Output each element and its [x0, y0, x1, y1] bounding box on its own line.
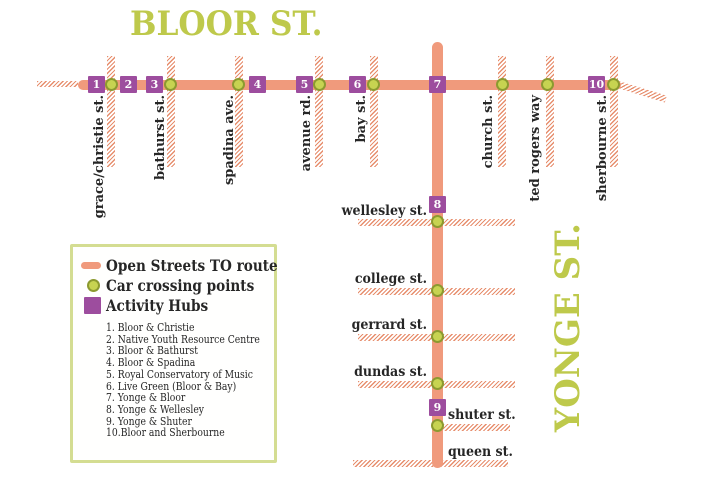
yonge-street-title: YONGE ST. [546, 223, 590, 432]
crossing-point-avenue-rd [313, 78, 326, 91]
legend-route-label: Open Streets TO route [106, 256, 278, 276]
street-label-gerrard: gerrard st. [310, 317, 427, 333]
street-label-bathurst: bathurst st. [152, 95, 170, 180]
crossing-point-church [496, 78, 509, 91]
church-street-hatch [498, 56, 506, 167]
street-label-sherbourne: sherbourne st. [594, 95, 612, 201]
street-label-bay: bay st. [353, 95, 371, 142]
crossing-point-shuter [431, 419, 444, 432]
activity-hub-marker-5: 5 [296, 76, 313, 93]
activity-hub-marker-4: 4 [249, 76, 266, 93]
crossing-point-dundas [431, 377, 444, 390]
activity-hub-marker-7: 7 [429, 76, 446, 93]
crossing-point-ted-rogers-way [541, 78, 554, 91]
avenue-road-hatch [315, 56, 323, 167]
route-continuation-hatch-east [617, 81, 667, 102]
route-continuation-hatch-west [37, 81, 78, 87]
queen-street-hatch [353, 460, 508, 467]
activity-hub-marker-2: 2 [120, 76, 137, 93]
legend-row-crossings: Car crossing points [76, 276, 274, 296]
ted-rogers-way-hatch [546, 56, 554, 167]
activity-hub-marker-8: 8 [429, 196, 446, 213]
activity-hub-marker-10: 10 [588, 76, 605, 93]
crossing-point-bathurst [164, 78, 177, 91]
crossing-point-college [431, 284, 444, 297]
street-label-grace-christie: grace/christie st. [91, 95, 109, 218]
hub-list-item-10: 10.Bloor and Sherbourne [106, 427, 247, 439]
bay-street-hatch [370, 56, 378, 167]
street-label-queen: queen st. [448, 444, 513, 460]
legend-crossings-label: Car crossing points [106, 276, 254, 296]
crossing-point-bay [367, 78, 380, 91]
activity-hub-swatch [84, 297, 101, 314]
legend-row-route: Open Streets TO route [76, 256, 274, 276]
activity-hub-marker-3: 3 [146, 76, 163, 93]
crossing-point-christie [105, 78, 118, 91]
crossing-point-spadina [232, 78, 245, 91]
street-label-church: church st. [480, 95, 498, 168]
activity-hub-list: 1.Bloor & Christie 2.Native Youth Resour… [106, 322, 274, 439]
street-label-dundas: dundas st. [310, 364, 427, 380]
legend: Open Streets TO route Car crossing point… [70, 244, 277, 463]
street-label-college: college st. [310, 271, 427, 287]
street-label-ted-rogers-way: ted rogers way [527, 95, 545, 202]
legend-row-hubs: Activity Hubs [76, 296, 274, 316]
crossing-point-wellesley [431, 215, 444, 228]
crossing-point-swatch [87, 279, 100, 292]
bloor-street-title: BLOOR ST. [130, 4, 323, 44]
crossing-point-sherbourne [607, 78, 620, 91]
open-streets-map: grace/christie st. bathurst st. spadina … [0, 0, 701, 499]
street-label-avenue-rd: avenue rd. [298, 95, 316, 171]
legend-hubs-label: Activity Hubs [106, 296, 208, 316]
street-label-shuter: shuter st. [448, 407, 516, 423]
activity-hub-marker-1: 1 [88, 76, 105, 93]
activity-hub-marker-9: 9 [429, 399, 446, 416]
route-swatch [81, 262, 101, 269]
crossing-point-gerrard [431, 330, 444, 343]
shuter-street-hatch [443, 424, 510, 431]
activity-hub-marker-6: 6 [349, 76, 366, 93]
street-label-spadina: spadina ave. [221, 95, 239, 185]
street-label-wellesley: wellesley st. [310, 203, 427, 219]
